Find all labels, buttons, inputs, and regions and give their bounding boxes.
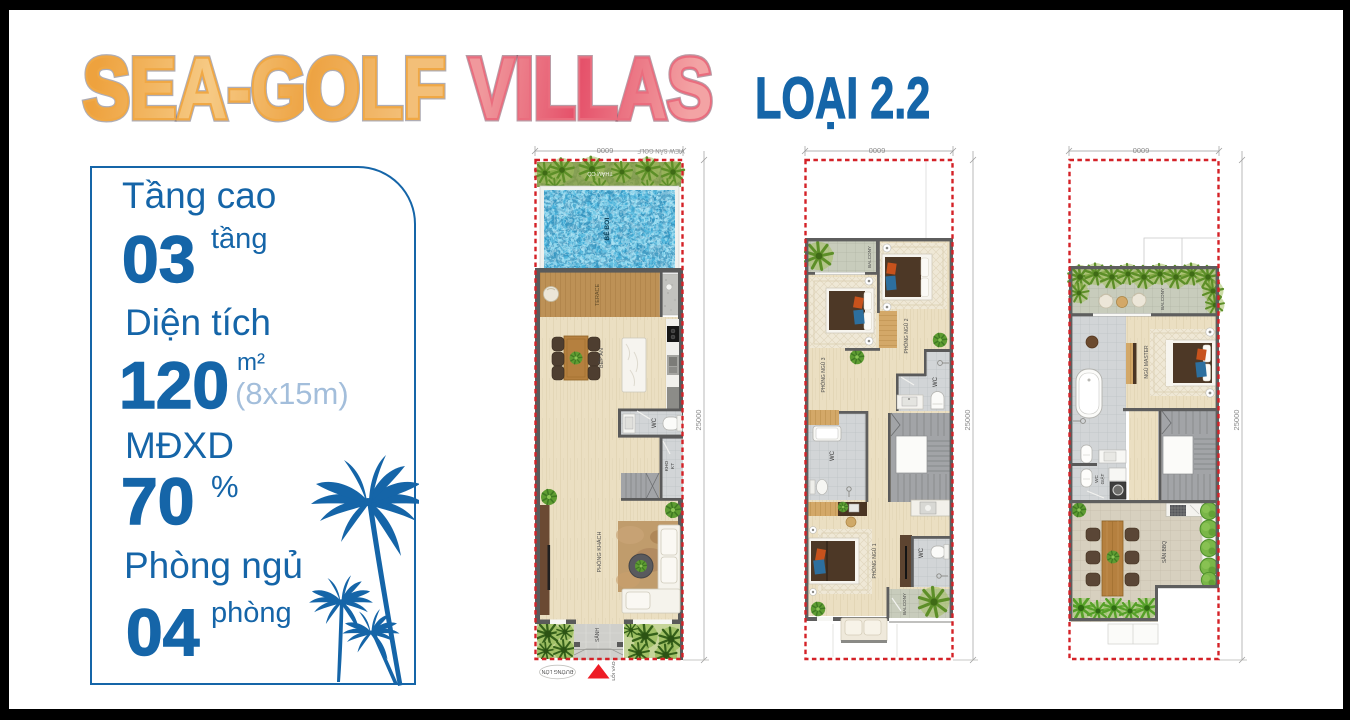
svg-text:SÂN BBQ: SÂN BBQ <box>1161 541 1168 563</box>
svg-text:KT: KT <box>670 463 676 469</box>
svg-text:SẢNH: SẢNH <box>594 628 601 642</box>
svg-text:BALCONY: BALCONY <box>867 246 872 268</box>
svg-text:PHÒNG KHÁCH: PHÒNG KHÁCH <box>596 531 603 572</box>
svg-text:6000: 6000 <box>1133 146 1150 155</box>
svg-text:25000: 25000 <box>694 410 703 431</box>
svg-text:25000: 25000 <box>1232 410 1241 431</box>
svg-text:25000: 25000 <box>963 410 972 431</box>
svg-text:PHÒNG NGỦ 2: PHÒNG NGỦ 2 <box>903 318 910 353</box>
svg-text:WC: WC <box>830 450 836 461</box>
svg-text:6000: 6000 <box>869 146 886 155</box>
svg-text:WC: WC <box>933 376 939 387</box>
svg-text:BALCONY: BALCONY <box>902 593 907 615</box>
svg-text:WC: WC <box>1094 474 1099 482</box>
svg-text:WC: WC <box>919 547 925 558</box>
svg-text:PHÒNG NGỦ 3: PHÒNG NGỦ 3 <box>820 357 827 392</box>
svg-text:BẾP ĂN: BẾP ĂN <box>598 348 605 368</box>
svg-text:LỐI VÀO: LỐI VÀO <box>610 661 617 680</box>
svg-text:WC: WC <box>652 417 658 428</box>
svg-text:6000: 6000 <box>597 146 614 155</box>
svg-text:NGỦ MASTER: NGỦ MASTER <box>1143 345 1150 379</box>
svg-text:TERACE: TERACE <box>595 284 601 307</box>
svg-text:PHÒNG NGỦ 1: PHÒNG NGỦ 1 <box>871 543 878 578</box>
svg-text:THẢM CỎ: THẢM CỎ <box>587 170 613 177</box>
svg-text:VIEW SÂN GOLF: VIEW SÂN GOLF <box>637 147 685 154</box>
svg-text:BỂ BƠI: BỂ BƠI <box>602 217 611 240</box>
svg-text:KHO: KHO <box>664 461 670 472</box>
svg-text:ĐƯỜNG LỚN: ĐƯỜNG LỚN <box>541 668 573 675</box>
svg-text:GIẶT: GIẶT <box>1099 473 1105 484</box>
svg-text:BALCONY: BALCONY <box>1160 288 1165 310</box>
